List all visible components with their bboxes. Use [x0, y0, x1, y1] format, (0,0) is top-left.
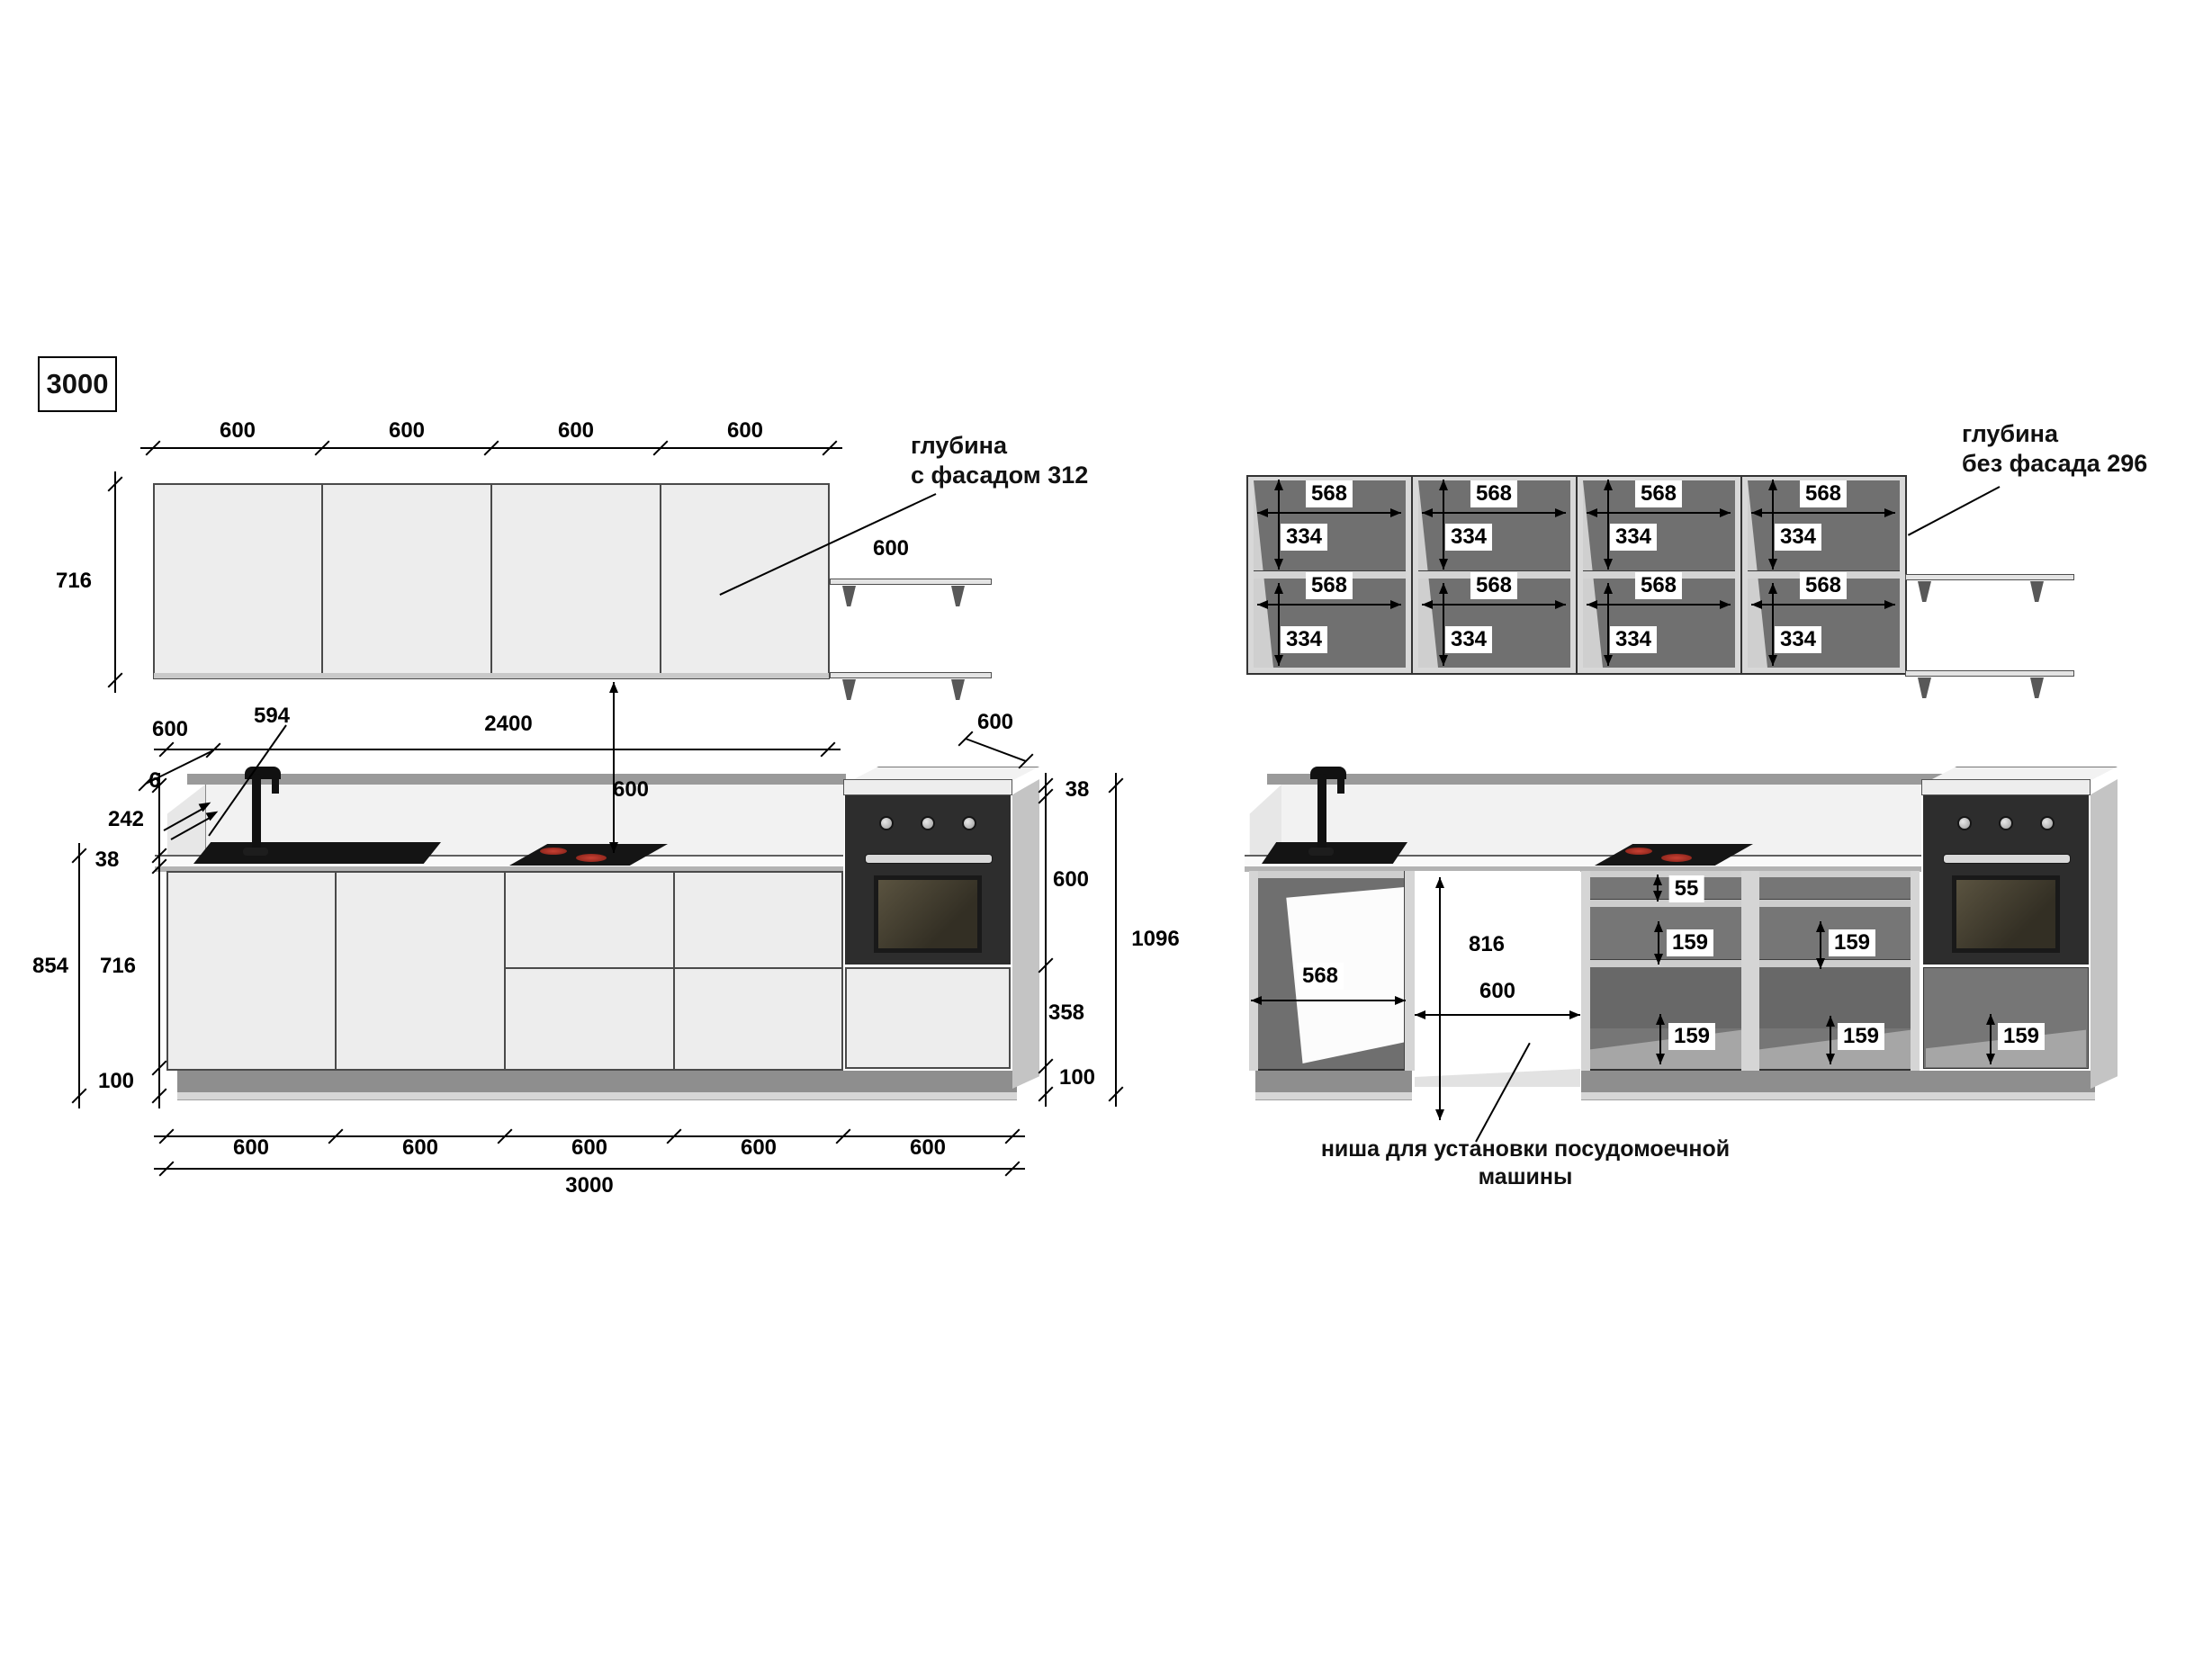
- dim-label: 6: [148, 768, 160, 794]
- cabinet-side-post: [1911, 871, 1920, 1071]
- dim-label: 242: [108, 807, 144, 832]
- note-line: глубина: [1962, 419, 2147, 449]
- dim-arrow-horizontal: [1751, 512, 1895, 514]
- depth-without-facade-note: глубина без фасада 296: [1962, 419, 2147, 479]
- upper-door-divider: [660, 485, 661, 677]
- plinth: [1581, 1071, 2095, 1092]
- dim-arrow-horizontal: [1257, 604, 1401, 606]
- oven-knob: [2040, 816, 2055, 830]
- oven-handle: [865, 854, 993, 864]
- burner-glow: [540, 848, 567, 855]
- arrowhead-up: [1604, 583, 1613, 594]
- dim-label: 159: [1998, 1023, 2045, 1050]
- dim-label: 568: [1306, 572, 1353, 599]
- oven-tower-cap: [1921, 779, 2091, 795]
- plinth-base-strip: [1581, 1092, 2095, 1100]
- dim-label: 3000: [565, 1173, 613, 1198]
- kitchen-drawing: 3000: [0, 0, 2212, 1660]
- note-line: глубина: [911, 431, 1088, 461]
- dim-line: [78, 843, 80, 1108]
- dim-label: 334: [1445, 626, 1492, 653]
- dim-label: 159: [1838, 1023, 1884, 1050]
- arrowhead-right: [1884, 508, 1895, 517]
- oven-tower-top: [1930, 767, 2118, 780]
- arrowhead-right: [1569, 1010, 1580, 1019]
- dim-label: 334: [1281, 626, 1327, 653]
- dim-arrow-horizontal: [1257, 512, 1401, 514]
- burner-glow: [576, 854, 607, 862]
- plinth: [177, 1071, 1017, 1092]
- shelf-bracket: [842, 586, 856, 606]
- dim-label: 600: [558, 418, 594, 444]
- oven-window: [874, 875, 982, 953]
- dim-label: 600: [233, 1135, 269, 1161]
- cabinet-top-rail: [1258, 871, 1404, 878]
- oven-drawer-front: [845, 967, 1011, 1069]
- arrowhead-right: [1720, 508, 1731, 517]
- drawer-split-line: [505, 967, 843, 969]
- dim-arrow-vertical: [613, 682, 615, 853]
- plinth-base-strip: [177, 1092, 1017, 1100]
- oven-tower-cap: [843, 779, 1012, 795]
- dim-arrow-horizontal: [1251, 1000, 1406, 1001]
- arrowhead-left: [1751, 600, 1762, 609]
- arrowhead-up: [1439, 480, 1448, 490]
- arrowhead-up: [609, 682, 618, 693]
- sink: [1262, 842, 1407, 864]
- dim-label: 568: [1635, 480, 1682, 507]
- arrowhead-down: [1604, 655, 1613, 666]
- arrowhead-down: [1439, 559, 1448, 570]
- dim-label: 334: [1775, 524, 1821, 551]
- oven-knob: [921, 816, 935, 830]
- oven-window: [1952, 875, 2060, 953]
- arrowhead-right: [1720, 600, 1731, 609]
- arrowhead-left: [1587, 508, 1597, 517]
- plinth-base-strip: [1255, 1092, 1412, 1100]
- shelf-bracket: [1918, 677, 1931, 698]
- drawer-rail: [1590, 899, 1741, 907]
- dim-arrow-vertical: [1443, 480, 1444, 570]
- dim-arrow-horizontal: [1751, 604, 1895, 606]
- arrowhead-down: [1274, 559, 1283, 570]
- wall-shelf: [1905, 670, 2074, 677]
- backsplash-top-strip: [187, 774, 846, 785]
- arrowhead-down: [1768, 655, 1777, 666]
- note-line: без фасада 296: [1962, 449, 2147, 479]
- dim-label: 600: [389, 418, 425, 444]
- dim-arrow-vertical: [1278, 480, 1280, 570]
- arrowhead-left: [1751, 508, 1762, 517]
- oven-handle: [1943, 854, 2071, 864]
- arrowhead-up: [1653, 875, 1662, 885]
- note-line: с фасадом 312: [911, 461, 1088, 490]
- oven-knob: [879, 816, 894, 830]
- dim-line: [1908, 486, 2001, 536]
- dim-arrow-vertical: [1607, 480, 1609, 570]
- arrowhead-up: [1826, 1016, 1835, 1027]
- faucet-base: [1308, 848, 1334, 856]
- arrowhead-up: [1986, 1014, 1995, 1025]
- dim-label: 358: [1048, 1000, 1084, 1026]
- arrowhead-left: [1422, 600, 1433, 609]
- arrowhead-left: [1251, 996, 1262, 1005]
- dim-arrow-vertical: [1443, 583, 1444, 666]
- dim-arrow-horizontal: [1415, 1014, 1580, 1016]
- dim-line: [114, 471, 116, 693]
- oven-knob: [1957, 816, 1972, 830]
- dim-label: 600: [613, 777, 649, 803]
- scale-box: 3000: [38, 356, 117, 412]
- arrowhead-down: [609, 842, 618, 853]
- dim-label: 568: [1800, 480, 1847, 507]
- upper-cabinet-bottom-edge: [154, 673, 829, 678]
- arrowhead-down: [1604, 559, 1613, 570]
- arrowhead-up: [1604, 480, 1613, 490]
- dim-label: 600: [1479, 979, 1515, 1004]
- shelf-bracket: [951, 586, 965, 606]
- arrowhead-up: [1654, 921, 1663, 932]
- dim-arrow-vertical: [1439, 877, 1441, 1120]
- faucet-base: [243, 848, 268, 856]
- depth-with-facade-note: глубина с фасадом 312: [911, 431, 1088, 490]
- faucet-spout: [1337, 776, 1344, 794]
- arrowhead-down: [1274, 655, 1283, 666]
- dim-label: 854: [32, 954, 68, 979]
- shelf-bracket: [842, 679, 856, 700]
- dim-label: 594: [254, 704, 290, 729]
- wall-shelf: [830, 672, 992, 678]
- oven-tower-top: [852, 767, 1039, 780]
- dim-label: 159: [1668, 1023, 1715, 1050]
- dim-tick: [206, 743, 221, 758]
- shelf-bracket: [2030, 581, 2044, 602]
- dim-label: 600: [741, 1135, 777, 1161]
- dim-label: 38: [1066, 777, 1090, 803]
- dim-label: 159: [1667, 929, 1713, 956]
- base-door-divider: [673, 873, 675, 1069]
- cabinet-side-post: [1750, 871, 1759, 1071]
- arrowhead-up: [1439, 583, 1448, 594]
- arrowhead-down: [1656, 1054, 1665, 1064]
- arrowhead-down: [1768, 559, 1777, 570]
- dim-label: 600: [402, 1135, 438, 1161]
- dim-line: [154, 749, 841, 750]
- shelf-bracket: [1918, 581, 1931, 602]
- arrowhead-down: [1816, 958, 1825, 969]
- dim-label: 600: [910, 1135, 946, 1161]
- dim-arrow-horizontal: [1587, 512, 1731, 514]
- dim-label: 568: [1470, 572, 1517, 599]
- dim-label: 568: [1297, 963, 1344, 990]
- arrowhead-up: [1768, 583, 1777, 594]
- arrowhead-left: [1257, 600, 1268, 609]
- faucet-spout: [272, 776, 279, 794]
- dim-line: [1045, 773, 1047, 1107]
- dim-label: 716: [100, 954, 136, 979]
- dim-label: 568: [1635, 572, 1682, 599]
- dim-tick: [958, 731, 974, 747]
- arrowhead-down: [1826, 1054, 1835, 1064]
- sink: [193, 842, 441, 864]
- cabinet-side-post: [1741, 871, 1750, 1071]
- cabinet-top-rail: [1759, 871, 1911, 877]
- dim-label: 38: [95, 848, 120, 873]
- shelf-bracket: [2030, 677, 2044, 698]
- arrowhead-right: [1390, 600, 1401, 609]
- arrowhead-down: [1986, 1054, 1995, 1064]
- arrowhead-right: [1555, 508, 1566, 517]
- dim-label: 334: [1281, 524, 1327, 551]
- dim-label: 334: [1610, 626, 1657, 653]
- dim-label: 568: [1470, 480, 1517, 507]
- dim-arrow-horizontal: [1587, 604, 1731, 606]
- dim-label: 55: [1669, 875, 1704, 902]
- faucet: [252, 774, 261, 853]
- oven-knob: [1999, 816, 2013, 830]
- dim-arrow-vertical: [1772, 583, 1774, 666]
- dim-tick: [1019, 754, 1034, 769]
- arrowhead-up: [1435, 877, 1444, 888]
- dim-line: [966, 738, 1027, 762]
- arrowhead-left: [1422, 508, 1433, 517]
- dim-line: [154, 1168, 1025, 1170]
- wall-shelf: [1905, 574, 2074, 580]
- dim-label: 816: [1469, 932, 1505, 957]
- arrowhead-left: [1587, 600, 1597, 609]
- arrowhead-down: [1439, 655, 1448, 666]
- wall-shelf: [830, 579, 992, 585]
- oven: [845, 795, 1011, 965]
- cabinet-top-rail: [1590, 871, 1741, 877]
- dim-label: 100: [98, 1069, 134, 1094]
- base-door-divider: [335, 873, 337, 1069]
- drawer-shadow-band: [1590, 967, 1741, 1028]
- dim-line: [158, 773, 160, 1108]
- plinth: [1255, 1071, 1412, 1092]
- arrowhead-up: [1274, 480, 1283, 490]
- burner-glow: [1625, 848, 1652, 855]
- arrowhead-right: [1390, 508, 1401, 517]
- arrowhead-up: [1656, 1014, 1665, 1025]
- dim-label: 600: [727, 418, 763, 444]
- dim-label: 159: [1829, 929, 1875, 956]
- upper-door-divider: [321, 485, 323, 677]
- dim-label: 2400: [484, 712, 532, 737]
- burner-glow: [1661, 854, 1692, 862]
- dim-label: 600: [873, 536, 909, 561]
- oven: [1923, 795, 2089, 965]
- cabinet-side-post: [1581, 871, 1590, 1071]
- arrowhead-left: [1257, 508, 1268, 517]
- arrowhead-down: [1654, 954, 1663, 965]
- dim-label: 600: [571, 1135, 607, 1161]
- dim-label: 568: [1306, 480, 1353, 507]
- dim-label: 334: [1610, 524, 1657, 551]
- arrowhead-up: [1816, 921, 1825, 932]
- shelf-bracket: [951, 679, 965, 700]
- dim-label: 600: [152, 717, 188, 742]
- arrowhead-right: [1555, 600, 1566, 609]
- dim-arrow-vertical: [1607, 583, 1609, 666]
- dim-arrow-horizontal: [1422, 512, 1566, 514]
- dim-label: 568: [1800, 572, 1847, 599]
- dim-label: 1096: [1131, 927, 1179, 952]
- dim-label: 600: [977, 710, 1013, 735]
- dim-label: 100: [1059, 1065, 1095, 1090]
- arrowhead-down: [1653, 891, 1662, 902]
- dim-arrow-horizontal: [1422, 604, 1566, 606]
- arrowhead-down: [1435, 1109, 1444, 1120]
- dim-label: 334: [1775, 626, 1821, 653]
- arrowhead-up: [1274, 583, 1283, 594]
- base-door-divider: [504, 873, 506, 1069]
- dim-label: 600: [220, 418, 256, 444]
- drawer-shadow-band: [1759, 967, 1911, 1028]
- scale-label: 3000: [47, 368, 109, 400]
- oven-tower-side: [2091, 779, 2118, 1089]
- arrowhead-left: [1415, 1010, 1425, 1019]
- oven-tower-side: [1012, 779, 1039, 1089]
- dim-label: 334: [1445, 524, 1492, 551]
- cabinet-side-post: [1249, 871, 1258, 1071]
- faucet: [1317, 774, 1326, 853]
- drawer-rail: [1759, 899, 1911, 907]
- arrowhead-right: [1395, 996, 1406, 1005]
- dim-arrow-vertical: [1278, 583, 1280, 666]
- dishwasher-niche-note: ниша для установки посудомоечной машины: [1314, 1135, 1737, 1190]
- arrowhead-up: [1768, 480, 1777, 490]
- oven-knob: [962, 816, 976, 830]
- upper-door-divider: [490, 485, 492, 677]
- dim-label: 600: [1053, 867, 1089, 893]
- arrowhead-right: [1884, 600, 1895, 609]
- dim-line: [1115, 773, 1117, 1107]
- dim-label: 716: [56, 569, 92, 594]
- dim-arrow-vertical: [1772, 480, 1774, 570]
